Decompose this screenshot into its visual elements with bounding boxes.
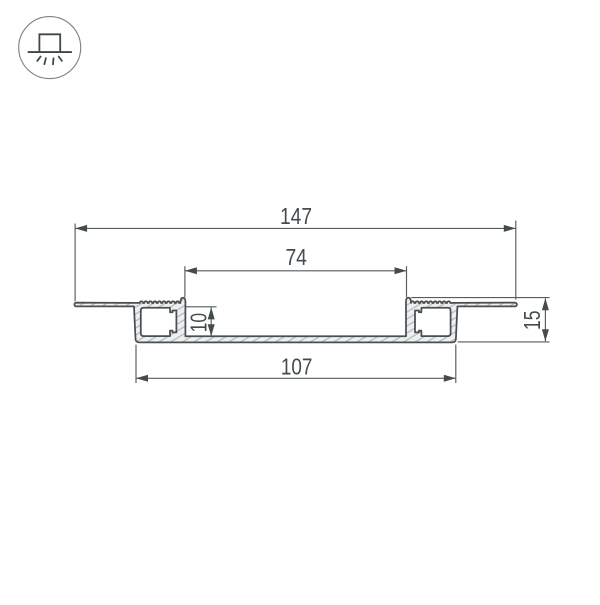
svg-text:15: 15	[519, 311, 545, 331]
svg-text:74: 74	[285, 244, 307, 270]
svg-text:10: 10	[186, 313, 212, 333]
svg-text:107: 107	[281, 353, 313, 379]
svg-text:147: 147	[280, 203, 312, 229]
